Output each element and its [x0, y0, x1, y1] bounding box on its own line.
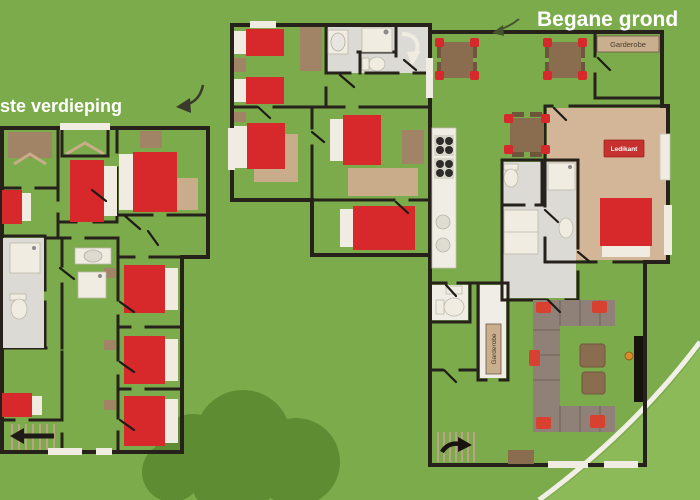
doormat [508, 450, 534, 464]
double-bed [600, 198, 652, 257]
double-bed [330, 115, 381, 165]
sink [436, 238, 450, 252]
hall-closet-label: Garderobe [491, 333, 498, 364]
dining-table [504, 112, 550, 157]
single-bed [234, 29, 284, 56]
first-floor-title: ste verdieping [0, 96, 122, 116]
washbasin [559, 218, 573, 238]
toilet [444, 298, 464, 316]
shower-head-icon [568, 165, 572, 169]
single-bed [234, 77, 284, 104]
wardrobe-room: Garderobe [597, 36, 659, 52]
floorplan-scene: Garderobe [0, 0, 700, 500]
rug [348, 168, 418, 196]
lamp-icon [625, 352, 633, 360]
washbasin-room [75, 248, 111, 298]
coffee-table [582, 372, 605, 394]
kitchen-counter [432, 128, 456, 268]
windows [48, 448, 112, 455]
toilet [11, 299, 27, 319]
bathroom [3, 238, 44, 348]
single-bed [2, 393, 42, 417]
balcony-notch [60, 123, 110, 156]
shower-head-icon [384, 30, 389, 35]
single-bed [2, 190, 31, 224]
staircase [438, 432, 474, 462]
double-bed [234, 123, 285, 169]
nightstand [234, 112, 246, 122]
toilet [504, 169, 518, 187]
shower-head-icon [32, 246, 36, 250]
dining-table [543, 38, 587, 80]
hall-closet: Garderobe [486, 324, 501, 374]
coffee-table [580, 344, 605, 367]
wardrobe [300, 27, 322, 71]
sink [436, 215, 450, 229]
nightstand [234, 58, 246, 72]
wardrobe [402, 130, 424, 164]
window [660, 134, 670, 180]
ground-floor-title: Begane grond [537, 8, 678, 31]
dining-table [435, 38, 479, 80]
cot-label: Ledikant [611, 146, 639, 153]
double-bed [340, 206, 415, 250]
floorplan-canvas: Garderobe [0, 0, 700, 500]
wardrobe-room-label: Garderobe [610, 40, 646, 49]
toilet [369, 57, 385, 71]
